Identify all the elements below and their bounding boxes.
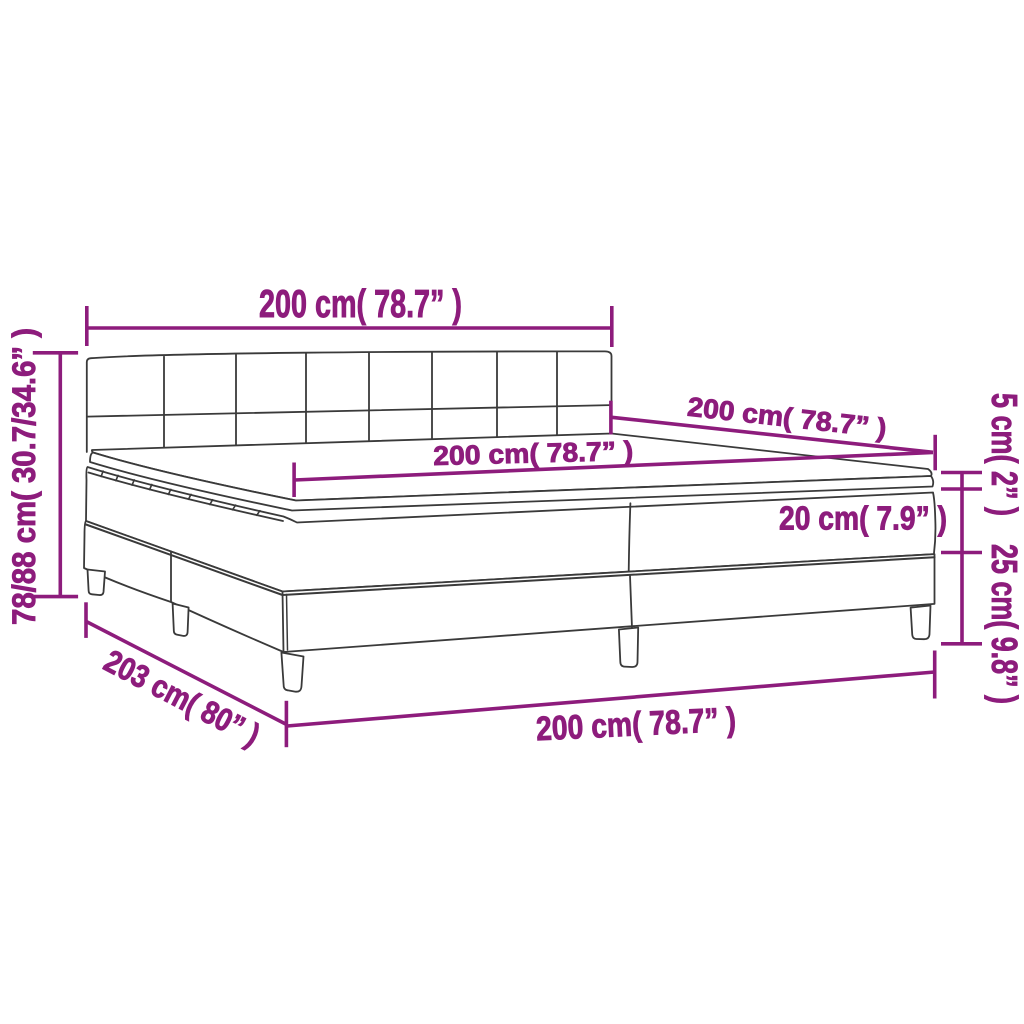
svg-text:20 cm( 7.9” ): 20 cm( 7.9” ) <box>779 500 947 537</box>
svg-text:25 cm( 9.8” ): 25 cm( 9.8” ) <box>984 544 1024 704</box>
svg-text:200 cm( 78.7” ): 200 cm( 78.7” ) <box>433 436 634 471</box>
svg-text:200 cm( 78.7” ): 200 cm( 78.7” ) <box>259 283 462 326</box>
svg-text:5 cm( 2” ): 5 cm( 2” ) <box>984 393 1024 516</box>
svg-text:78/88 cm( 30.7/34.6” ): 78/88 cm( 30.7/34.6” ) <box>6 328 42 625</box>
